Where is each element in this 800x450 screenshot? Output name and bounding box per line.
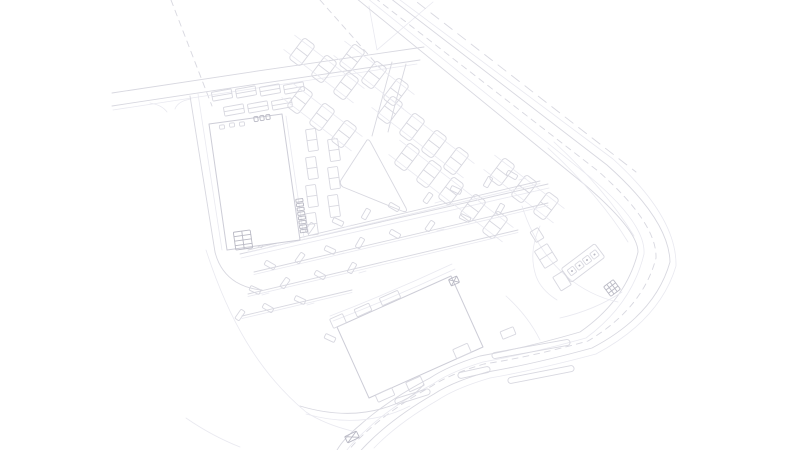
site-plan-screenshot bbox=[0, 0, 800, 450]
gas-station bbox=[522, 206, 620, 302]
anchor-store bbox=[330, 276, 516, 402]
site-plan-canvas bbox=[0, 0, 800, 450]
retail-building bbox=[209, 114, 307, 250]
